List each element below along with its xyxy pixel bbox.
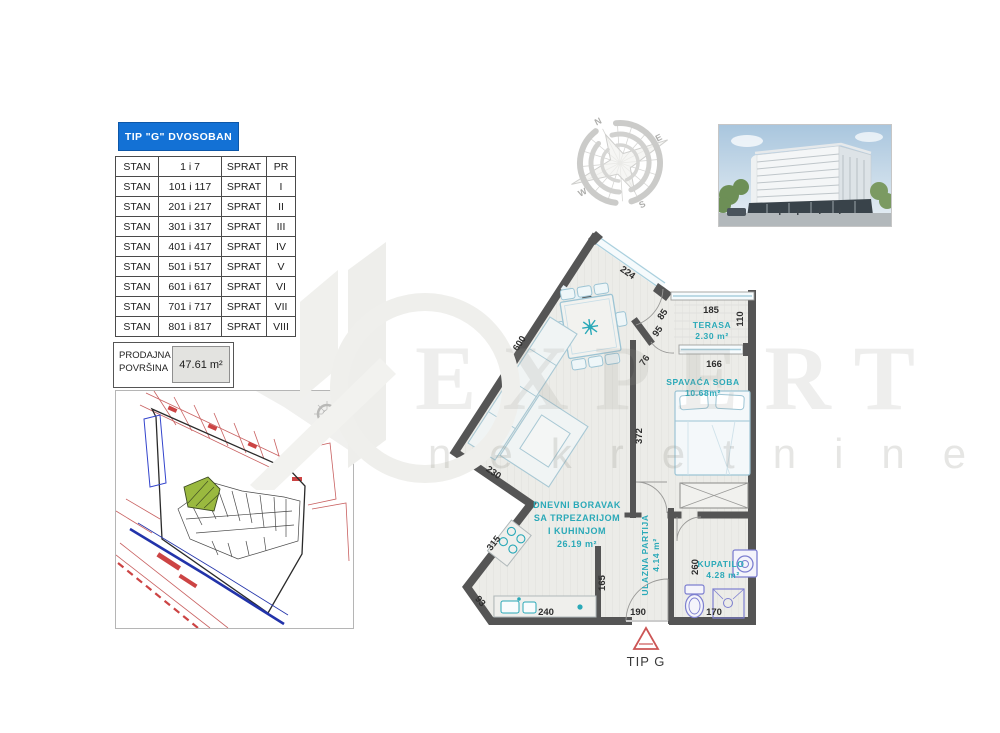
dim-240: 240: [538, 607, 554, 618]
compass-n: N: [593, 116, 603, 128]
type-marker: TIP G: [627, 628, 666, 669]
living-name-1: DNEVNI BORAVAK: [533, 500, 621, 510]
table-row: STAN401 i 417SPRATIV: [116, 237, 296, 257]
bathroom-name: KUPATILO: [698, 559, 745, 569]
type-title: TIP "G" DVOSOBAN: [118, 122, 239, 151]
building-photo: [718, 124, 892, 227]
car: [727, 208, 746, 216]
selling-area-label: PRODAJNA POVRŠINA: [119, 350, 173, 376]
hall-area: 4.14 m²: [651, 538, 661, 572]
terrace-name: TERASA: [693, 320, 732, 330]
dim-110: 110: [735, 311, 746, 326]
dim-166: 166: [706, 359, 722, 370]
selling-area-value: 47.61 m²: [172, 346, 230, 383]
compass-drawing: N E S W: [563, 103, 678, 218]
site-plan-drawing: [116, 391, 353, 628]
compass-rose: N E S W: [563, 103, 678, 218]
table-row: STAN201 i 217SPRATII: [116, 197, 296, 217]
living-name-3: I KUHINJOM: [548, 526, 606, 536]
table-row: STAN701 i 717SPRATVII: [116, 297, 296, 317]
table-row: STAN801 i 817SPRATVIII: [116, 317, 296, 337]
dim-165: 165: [597, 574, 608, 591]
bathroom-area: 4.28 m²: [706, 570, 740, 580]
wardrobe: [680, 483, 748, 508]
terrace-railing: [671, 292, 754, 300]
table-row: STAN101 i 117SPRATI: [116, 177, 296, 197]
apartments-table: STAN1 i 7SPRATPR STAN101 i 117SPRATI STA…: [115, 156, 296, 337]
dim-190: 190: [630, 607, 646, 618]
building-mass: [747, 144, 873, 217]
bed: [675, 391, 750, 475]
type-marker-label: TIP G: [627, 654, 666, 669]
brochure-page: TIP "G" DVOSOBAN STAN1 i 7SPRATPR STAN10…: [0, 0, 1000, 733]
dim-185: 185: [703, 305, 720, 316]
building-render: [719, 125, 891, 226]
table-row: STAN301 i 317SPRATIII: [116, 217, 296, 237]
bedroom-name: SPAVAĆA SOBA: [666, 376, 739, 387]
selling-area-box: PRODAJNA POVRŠINA 47.61 m²: [113, 342, 234, 388]
terrace-area: 2.30 m²: [695, 331, 729, 341]
window-166: [679, 343, 754, 356]
dim-372: 372: [634, 428, 645, 444]
living-area: 26.19 m²: [557, 539, 597, 549]
dim-170: 170: [706, 607, 722, 618]
type-marker-triangle-icon: [634, 628, 658, 649]
toilet-icon: [685, 585, 704, 618]
hall-name: ULAZNA PARTIJA: [640, 514, 650, 595]
bedroom-area: 10.68m²: [685, 388, 721, 398]
site-blue-parcel: [144, 415, 166, 487]
floor-plan-drawing: 224 600 230 315 93 240 165 190 170 260 1…: [430, 225, 780, 675]
table-row: STAN601 i 617SPRATVI: [116, 277, 296, 297]
table-row: STAN501 i 517SPRATV: [116, 257, 296, 277]
site-plan: [115, 390, 354, 629]
living-name-2: SA TRPEZARIJOM: [534, 513, 620, 523]
compass-s: S: [637, 199, 647, 211]
floor-plan: 224 600 230 315 93 240 165 190 170 260 1…: [430, 225, 780, 675]
table-row: STAN1 i 7SPRATPR: [116, 157, 296, 177]
site-shading: [256, 391, 353, 453]
site-highlight-building: [184, 477, 220, 511]
